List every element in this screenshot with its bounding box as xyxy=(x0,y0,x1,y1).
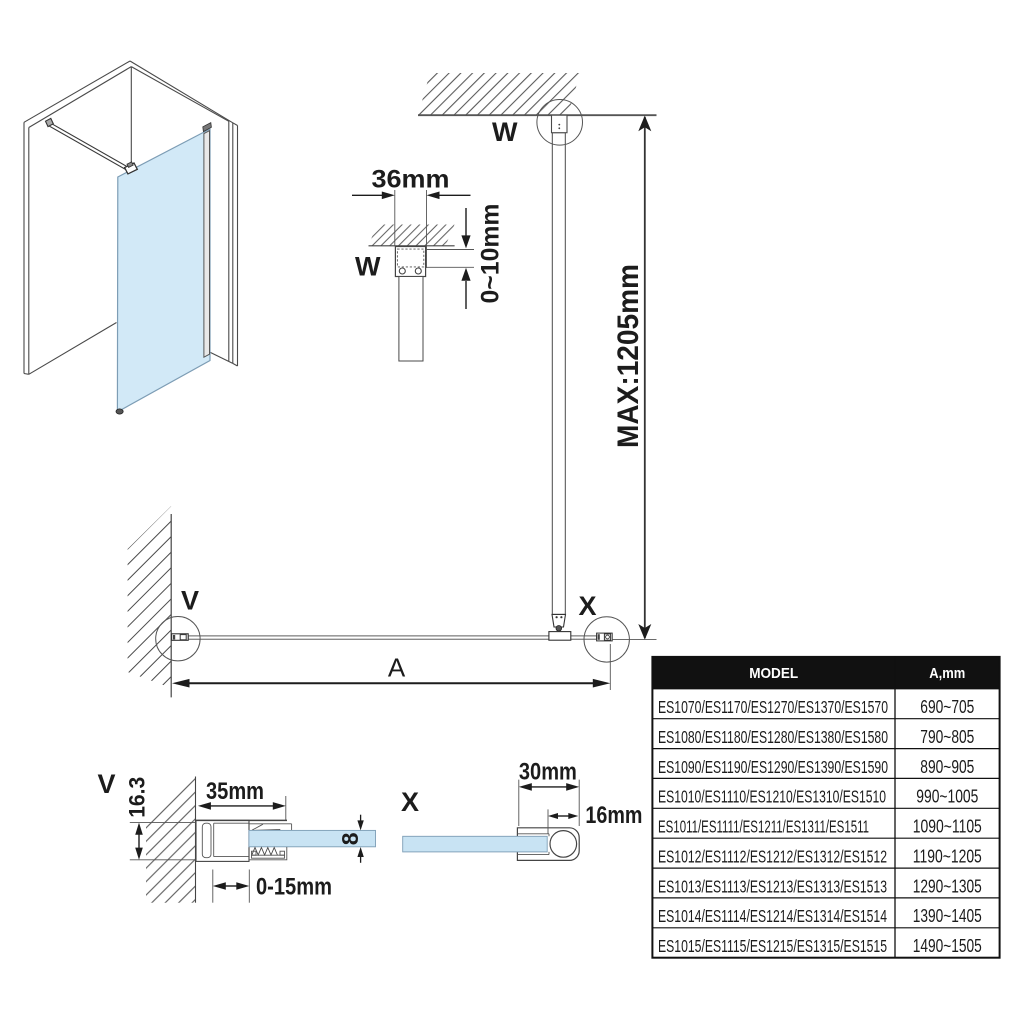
svg-text:V: V xyxy=(181,586,199,616)
svg-text:990~1005: 990~1005 xyxy=(916,787,978,807)
svg-text:ES1014/ES1114/ES1214/ES1314/ES: ES1014/ES1114/ES1214/ES1314/ES1514 xyxy=(658,906,887,926)
svg-text:ES1090/ES1190/ES1290/ES1390/ES: ES1090/ES1190/ES1290/ES1390/ES1590 xyxy=(658,757,888,777)
svg-text:V: V xyxy=(98,769,116,799)
svg-text:ES1015/ES1115/ES1215/ES1315/ES: ES1015/ES1115/ES1215/ES1315/ES1515 xyxy=(658,936,887,956)
svg-text:1390~1405: 1390~1405 xyxy=(913,906,982,926)
svg-text:0-15mm: 0-15mm xyxy=(256,873,332,900)
svg-text:A: A xyxy=(388,653,406,683)
svg-text:W: W xyxy=(355,252,381,282)
svg-text:ES1011/ES1111/ES1211/ES1311/ES: ES1011/ES1111/ES1211/ES1311/ES1511 xyxy=(658,817,869,837)
svg-text:MAX:1205mm: MAX:1205mm xyxy=(612,264,645,448)
svg-text:1090~1105: 1090~1105 xyxy=(913,817,982,837)
svg-text:0~10mm: 0~10mm xyxy=(477,204,505,304)
svg-text:X: X xyxy=(579,591,597,621)
svg-text:A,mm: A,mm xyxy=(929,665,965,682)
svg-text:30mm: 30mm xyxy=(519,758,577,785)
svg-text:16.3: 16.3 xyxy=(125,777,150,818)
svg-text:X: X xyxy=(401,787,419,817)
svg-text:8: 8 xyxy=(337,832,363,845)
svg-text:1490~1505: 1490~1505 xyxy=(913,936,982,956)
svg-text:1290~1305: 1290~1305 xyxy=(913,876,982,896)
svg-text:ES1012/ES1112/ES1212/ES1312/ES: ES1012/ES1112/ES1212/ES1312/ES1512 xyxy=(658,846,887,866)
svg-text:ES1013/ES1113/ES1213/ES1313/ES: ES1013/ES1113/ES1213/ES1313/ES1513 xyxy=(658,876,887,896)
svg-text:ES1070/ES1170/ES1270/ES1370/ES: ES1070/ES1170/ES1270/ES1370/ES1570 xyxy=(658,697,888,717)
svg-text:16mm: 16mm xyxy=(585,802,642,829)
svg-text:36mm: 36mm xyxy=(372,166,450,194)
svg-text:MODEL: MODEL xyxy=(749,665,798,682)
svg-text:ES1080/ES1180/ES1280/ES1380/ES: ES1080/ES1180/ES1280/ES1380/ES1580 xyxy=(658,727,888,747)
svg-text:W: W xyxy=(492,117,518,147)
svg-text:890~905: 890~905 xyxy=(920,757,974,777)
svg-text:690~705: 690~705 xyxy=(920,697,974,717)
svg-text:790~805: 790~805 xyxy=(920,727,974,747)
svg-text:35mm: 35mm xyxy=(206,778,264,805)
svg-text:1190~1205: 1190~1205 xyxy=(913,846,982,866)
svg-text:ES1010/ES1110/ES1210/ES1310/ES: ES1010/ES1110/ES1210/ES1310/ES1510 xyxy=(658,787,886,807)
